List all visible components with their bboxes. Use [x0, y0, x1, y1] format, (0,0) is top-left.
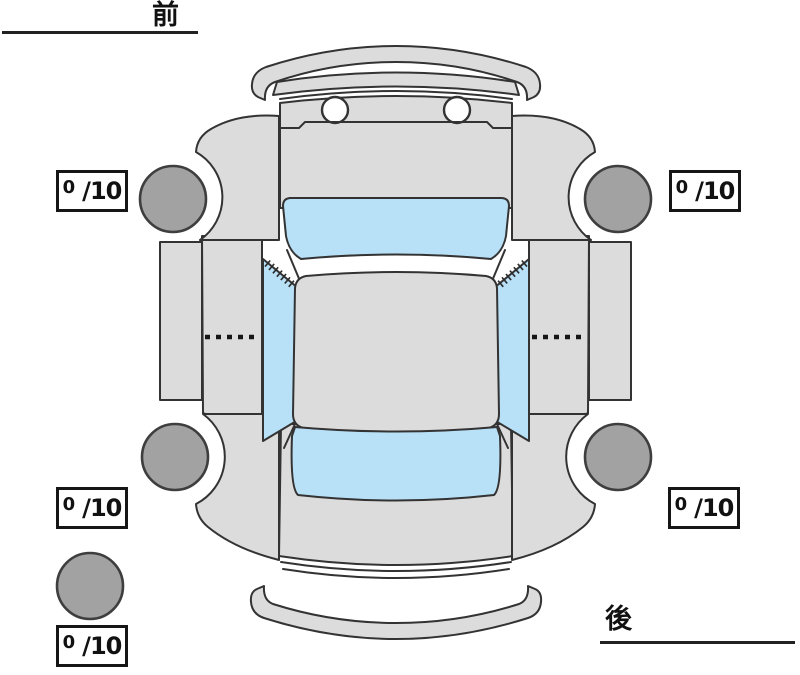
fender-front-left [196, 116, 279, 240]
tread-score-spare: 0 /10 [56, 625, 128, 667]
front-direction-label: 前 [152, 1, 179, 31]
rear-direction-underline [600, 641, 795, 644]
tread-score-rear-right-suffix: /10 [694, 494, 733, 522]
headlight-left-icon [322, 97, 348, 123]
tread-score-rear-left-suffix: /10 [82, 494, 121, 522]
tread-score-spare-value: 0 [63, 632, 76, 653]
tread-score-front-left: 0 /10 [56, 170, 128, 212]
tread-score-front-right: 0 /10 [669, 170, 741, 212]
tire-rear-right [585, 424, 651, 490]
tread-score-front-left-value: 0 [63, 177, 76, 198]
hood-panel [280, 96, 512, 208]
tire-condition-diagram: 前 後 0 /10 0 /10 0 /10 0 /10 0 /10 [0, 0, 800, 675]
tread-score-rear-right-value: 0 [675, 494, 688, 515]
tread-score-spare-suffix: /10 [82, 632, 121, 660]
tire-front-left [140, 166, 206, 232]
tread-score-rear-left: 0 /10 [56, 487, 128, 529]
rear-bumper [251, 586, 541, 639]
sill-right [589, 242, 631, 400]
headlight-right-icon [444, 97, 470, 123]
front-direction-underline [2, 31, 198, 34]
windshield [283, 198, 509, 259]
fender-front-right [512, 116, 595, 240]
tire-rear-left [142, 424, 208, 490]
rear-window [292, 427, 501, 501]
car-top-view [0, 0, 800, 675]
tread-score-front-right-value: 0 [676, 177, 689, 198]
tread-score-front-left-suffix: /10 [82, 177, 121, 205]
tread-score-rear-right: 0 /10 [668, 487, 740, 529]
tread-score-rear-left-value: 0 [63, 494, 76, 515]
spare-tire [57, 553, 123, 619]
tread-score-front-right-suffix: /10 [695, 177, 734, 205]
rear-direction-label: 後 [605, 605, 632, 635]
tire-front-right [585, 166, 651, 232]
sill-left [160, 242, 202, 400]
roof-panel [293, 272, 499, 433]
